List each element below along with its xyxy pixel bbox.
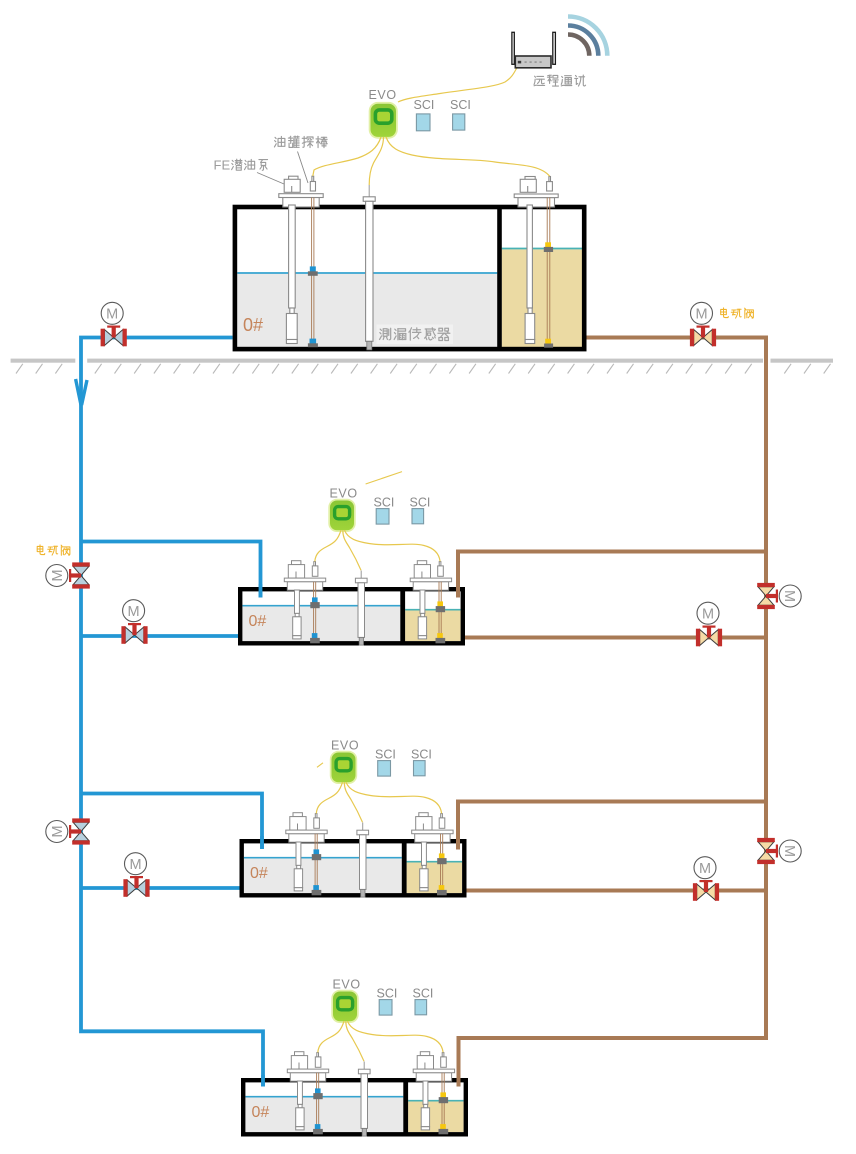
svg-text:SCI: SCI bbox=[414, 98, 435, 112]
svg-text:FE: FE bbox=[214, 158, 231, 173]
svg-text:SCI: SCI bbox=[450, 98, 471, 112]
svg-text:EVO: EVO bbox=[369, 88, 397, 102]
svg-text:0#: 0# bbox=[243, 315, 263, 335]
